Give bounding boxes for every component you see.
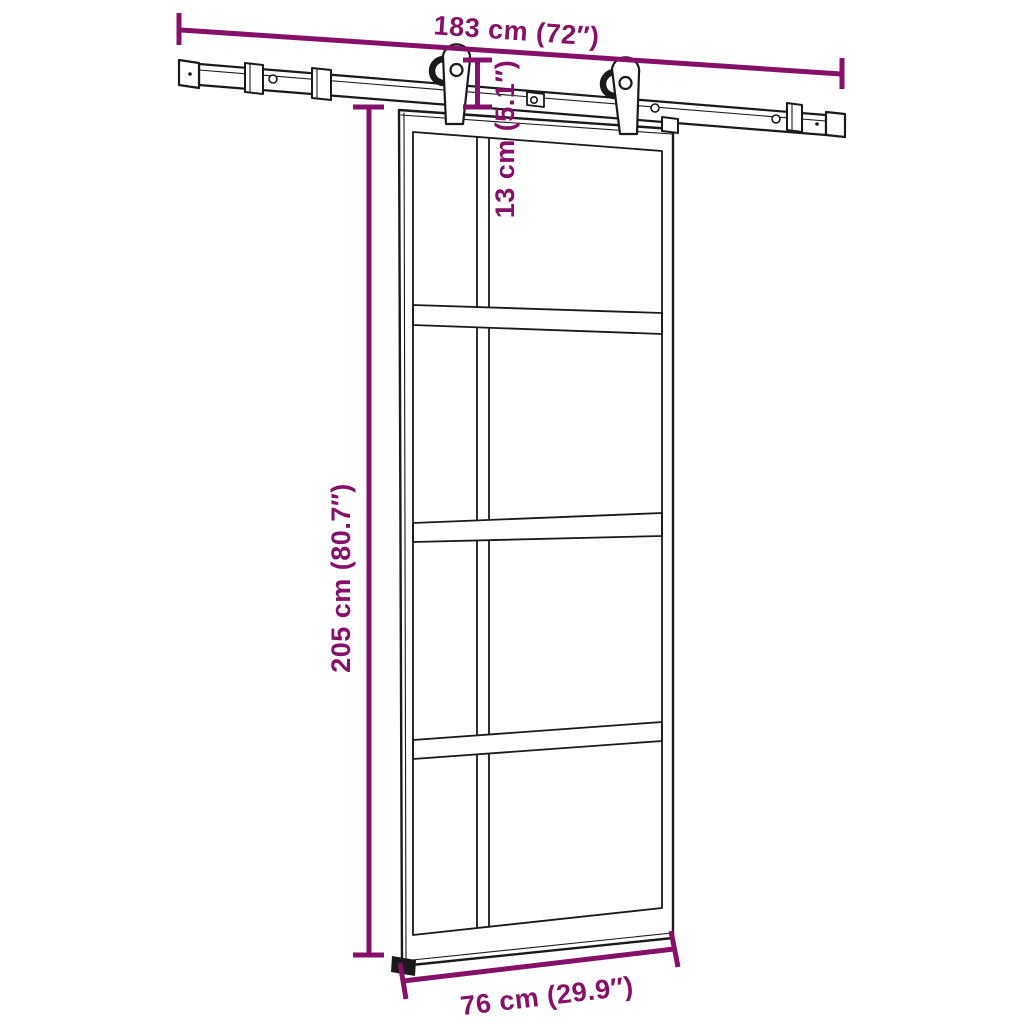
- dimension-diagram-page: 183 cm (72″) 13 cm (5.1″) 205 cm (80.7″)…: [0, 0, 1024, 1024]
- sliding-door-dimension-diagram: 183 cm (72″) 13 cm (5.1″) 205 cm (80.7″)…: [0, 0, 1024, 1024]
- door-corner-cap: [662, 117, 678, 133]
- door-height-label: 205 cm (80.7″): [326, 483, 356, 673]
- rail-bracket-mid: [312, 68, 331, 100]
- end-cap-screw-left: [188, 72, 192, 76]
- rail-bracket-right: [787, 103, 802, 132]
- door-width-tick-right: [671, 931, 678, 967]
- door-height-dimension: [353, 107, 384, 955]
- door-stop-clip-screw: [531, 97, 537, 103]
- rail-end-cap-right: [826, 112, 845, 137]
- roller-hanger-right: [603, 57, 639, 134]
- glass-door: [391, 110, 678, 976]
- rail-screw-hole-3: [772, 115, 780, 123]
- hanger-bolt-left: [451, 64, 463, 76]
- drop-height-label: 13 cm (5.1″): [490, 60, 520, 219]
- rail-screw-hole-2: [651, 104, 659, 112]
- rail-bracket-left: [245, 63, 263, 94]
- end-cap-screw-right: [815, 122, 819, 126]
- hanger-strap-right: [612, 57, 639, 134]
- hanger-strap-left: [443, 44, 470, 124]
- hanger-bolt-right: [620, 77, 632, 89]
- rail-screw-hole-1: [269, 75, 277, 83]
- door-width-label: 76 cm (29.9″): [459, 971, 635, 1021]
